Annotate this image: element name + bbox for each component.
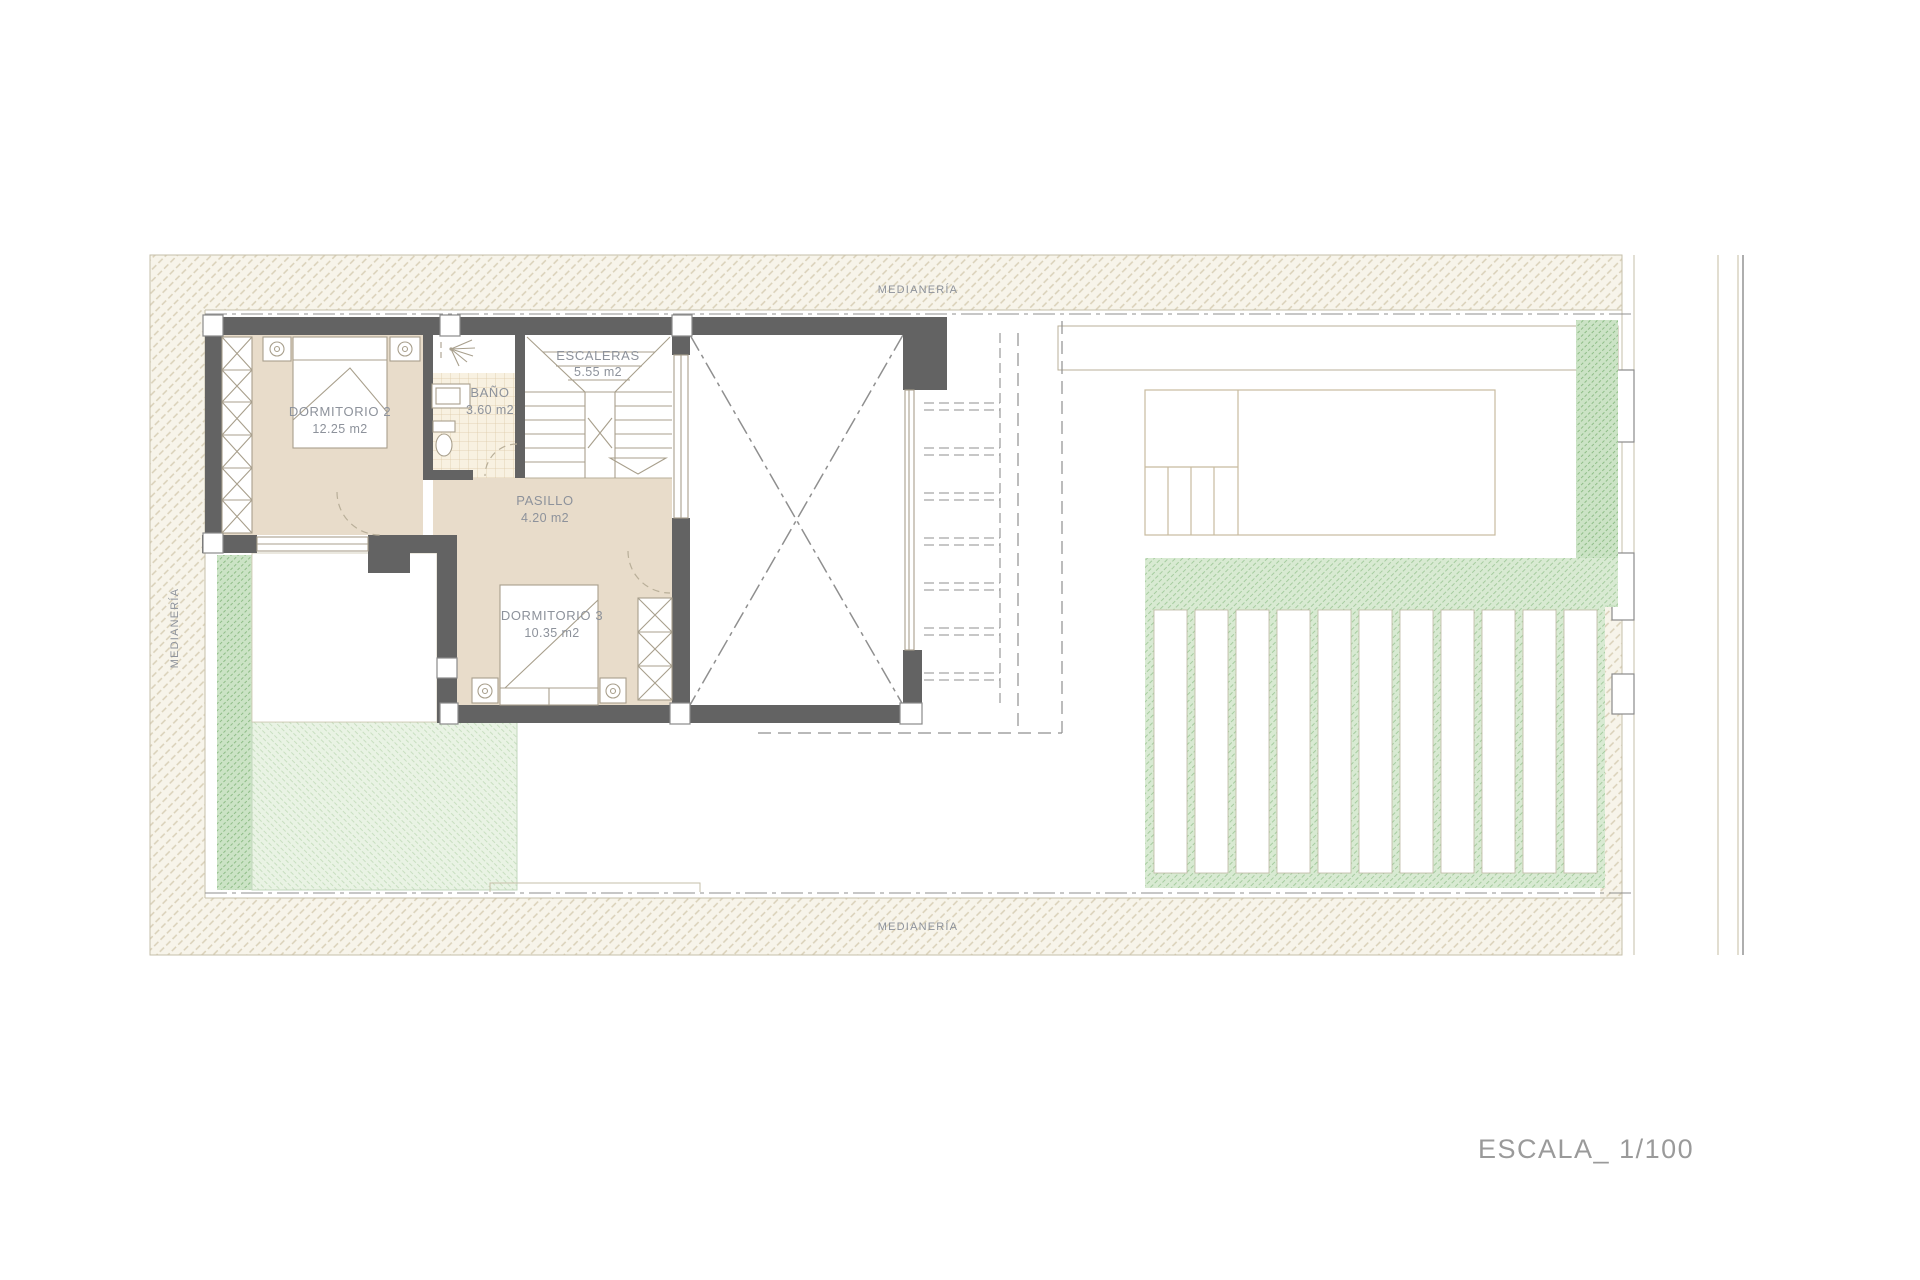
floor-plan-page: DORMITORIO 2 12.25 m2 BAÑO 3.60 m2 ESCAL…: [0, 0, 1920, 1280]
label-dormitorio3-area: 10.35 m2: [524, 626, 579, 640]
wardrobe-dormitorio2-icon: [222, 337, 252, 533]
pergola-slats: [1145, 605, 1605, 888]
label-bano-area: 3.60 m2: [466, 403, 514, 417]
label-dormitorio2-area: 12.25 m2: [312, 422, 367, 436]
swimming-pool: [1145, 390, 1495, 535]
label-escaleras-name: ESCALERAS: [556, 348, 639, 363]
label-medianeria-left: MEDIANERÍA: [168, 588, 181, 668]
label-dormitorio2-name: DORMITORIO 2: [289, 404, 391, 419]
label-dormitorio3-name: DORMITORIO 3: [501, 608, 603, 623]
beam-pair: [924, 403, 1000, 680]
label-pasillo-name: PASILLO: [516, 493, 573, 508]
window-void-right: [905, 390, 914, 650]
entry-step: [490, 883, 700, 892]
sink-icon: [432, 384, 470, 408]
wardrobe-dormitorio3-icon: [638, 598, 672, 700]
pool-steps: [1168, 467, 1214, 535]
scale-label: ESCALA_ 1/100: [1478, 1134, 1694, 1164]
window-void-left: [674, 355, 688, 518]
floor-plan-drawing: DORMITORIO 2 12.25 m2 BAÑO 3.60 m2 ESCAL…: [0, 0, 1920, 1280]
label-escaleras-area: 5.55 m2: [574, 365, 622, 379]
window-terrace: [257, 537, 368, 551]
adjacent-parcel-lines: [1718, 255, 1743, 955]
label-bano-name: BAÑO: [470, 385, 509, 400]
label-medianeria-bottom: MEDIANERÍA: [878, 920, 958, 933]
label-pasillo-area: 4.20 m2: [521, 511, 569, 525]
label-medianeria-top: MEDIANERÍA: [878, 283, 958, 296]
